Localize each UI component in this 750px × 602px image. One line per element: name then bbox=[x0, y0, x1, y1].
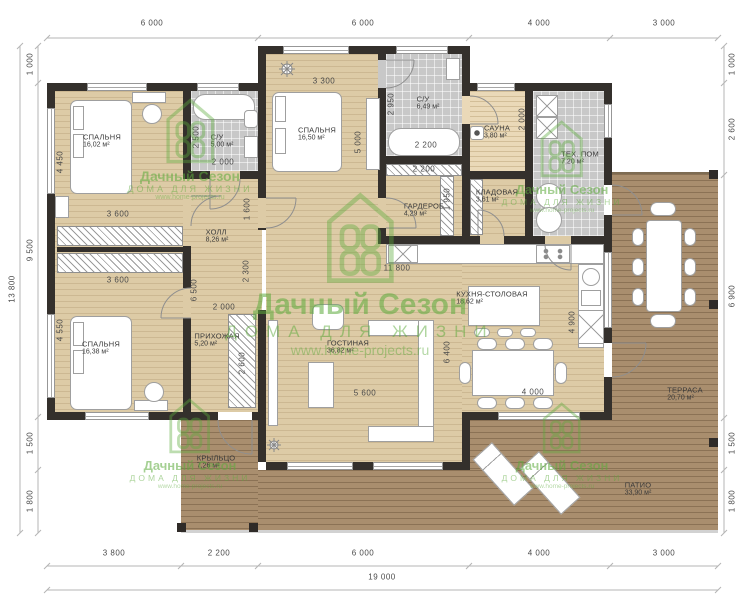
toilet bbox=[244, 110, 258, 128]
wall bbox=[258, 310, 266, 462]
pillow bbox=[275, 96, 286, 122]
room-label: ПРИХОЖАЯ5,20 м² bbox=[194, 331, 239, 348]
pillow bbox=[73, 106, 84, 130]
boiler bbox=[536, 183, 562, 209]
room-name: СПАЛЬНЯ bbox=[298, 125, 336, 134]
door-opening bbox=[604, 185, 612, 215]
fridge bbox=[388, 245, 418, 263]
room-label: СПАЛЬНЯ16,50 м² bbox=[298, 125, 336, 142]
room-area: 33,90 м² bbox=[625, 489, 652, 497]
window bbox=[287, 462, 353, 470]
desk-chair bbox=[142, 104, 162, 124]
window bbox=[87, 83, 147, 91]
terrace-chair bbox=[650, 202, 676, 216]
dimension-left: 1 000 bbox=[26, 53, 35, 76]
dimension-inner: 2 950 bbox=[387, 93, 396, 116]
dimension-inner: 3 600 bbox=[107, 210, 130, 219]
terrace-chair bbox=[632, 228, 644, 246]
wall bbox=[462, 171, 525, 179]
room-area: 4,29 м² bbox=[404, 210, 444, 218]
door-opening bbox=[604, 343, 612, 377]
dining-chair bbox=[533, 338, 553, 350]
tv-console bbox=[268, 320, 278, 426]
room-area: 3,80 м² bbox=[484, 132, 510, 140]
dimension-inner: 4 900 bbox=[568, 311, 577, 334]
cabinet-x bbox=[536, 95, 558, 117]
dimension-bottom: 4 000 bbox=[528, 549, 551, 558]
wall bbox=[183, 246, 191, 420]
dimension-inner: 3 600 bbox=[107, 276, 130, 285]
dimension-inner: 3 300 bbox=[313, 77, 336, 86]
dimension-bottom: 3 000 bbox=[653, 549, 676, 558]
washing-machine bbox=[536, 207, 562, 233]
room-name: ТЕХ. ПОМ bbox=[561, 149, 599, 158]
room-name: ТЕРРАСА bbox=[667, 385, 703, 394]
room-area: 18,62 м² bbox=[456, 298, 527, 306]
dimension-inner: 2 000 bbox=[212, 158, 235, 167]
room-label: КУХНЯ-СТОЛОВАЯ18,62 м² bbox=[456, 289, 527, 306]
dimension-inner: 2 600 bbox=[238, 352, 247, 375]
dimension-right: 6 900 bbox=[728, 285, 737, 308]
room-name: С/У bbox=[211, 132, 234, 141]
terrace-chair bbox=[650, 314, 676, 328]
dimension-inner: 2 200 bbox=[415, 141, 438, 150]
dimension-inner: 4 450 bbox=[56, 151, 65, 174]
dimension-right: 1 500 bbox=[728, 432, 737, 455]
window bbox=[604, 104, 612, 138]
dimension-inner: 5 000 bbox=[354, 131, 363, 154]
room-area: 16,38 м² bbox=[82, 348, 120, 356]
deck-edge bbox=[181, 530, 718, 533]
wardrobe-closet bbox=[57, 226, 183, 246]
room-name: КУХНЯ-СТОЛОВАЯ bbox=[456, 289, 527, 298]
dimension-inner: 1 600 bbox=[243, 198, 252, 221]
dimension-inner: 4 550 bbox=[56, 319, 65, 342]
door-opening bbox=[462, 96, 470, 124]
room-label: С/У6,49 м² bbox=[417, 94, 440, 111]
door-opening bbox=[210, 171, 240, 179]
window bbox=[47, 108, 55, 194]
bar-stool bbox=[520, 328, 536, 337]
cabinet-x bbox=[536, 117, 558, 139]
dining-chair bbox=[533, 397, 553, 409]
room-area: 20,70 м² bbox=[667, 394, 703, 402]
dining-chair bbox=[555, 362, 567, 384]
wardrobe bbox=[366, 98, 380, 170]
wall bbox=[57, 247, 185, 252]
floor-plan: 6 0006 0004 0003 0003 8002 2006 0004 000… bbox=[0, 0, 750, 602]
dimension-total-height: 13 800 bbox=[8, 275, 17, 302]
kitchen-counter bbox=[386, 244, 604, 264]
room-name: САУНА bbox=[484, 123, 510, 132]
cooktop bbox=[536, 245, 570, 263]
room-label: КЛАДОВАЯ3,61 м² bbox=[476, 187, 518, 204]
dimension-inner: 6 500 bbox=[190, 279, 199, 302]
room-label: ТЕРРАСА20,70 м² bbox=[667, 385, 703, 402]
room-label: СПАЛЬНЯ16,38 м² bbox=[82, 339, 120, 356]
column-post bbox=[709, 438, 718, 447]
dimension-inner: 2 000 bbox=[213, 303, 236, 312]
room-label: ТЕХ. ПОМ7,20 м² bbox=[561, 149, 599, 166]
column-post bbox=[177, 523, 186, 532]
dining-chair bbox=[477, 338, 497, 350]
dimension-top: 6 000 bbox=[141, 19, 164, 28]
room-label: ПАТИО33,90 м² bbox=[625, 480, 652, 497]
dimension-inner: 11 800 bbox=[384, 264, 411, 273]
bar-stool bbox=[497, 328, 513, 337]
dimension-inner: 5 600 bbox=[354, 389, 377, 398]
room-area: 16,02 м² bbox=[83, 141, 121, 149]
sink bbox=[244, 136, 258, 158]
dimension-right: 1 800 bbox=[728, 490, 737, 513]
sofa bbox=[368, 426, 434, 442]
dimension-inner: 4 000 bbox=[522, 388, 545, 397]
terrace-table bbox=[646, 220, 682, 312]
dimension-bottom: 2 200 bbox=[208, 549, 231, 558]
dimension-inner: 6 400 bbox=[443, 341, 452, 364]
terrace-chair bbox=[684, 228, 696, 246]
dimension-top: 3 000 bbox=[653, 19, 676, 28]
kitchen-sink bbox=[582, 268, 600, 286]
room-label: КРЫЛЬЦО7,26 м² bbox=[197, 453, 235, 470]
room-area: 16,50 м² bbox=[298, 134, 336, 142]
room-area: 5,00 м² bbox=[211, 141, 234, 149]
sauna-stove bbox=[470, 126, 484, 140]
terrace-chair bbox=[632, 288, 644, 306]
desk-chair bbox=[144, 382, 164, 402]
door-opening bbox=[258, 198, 266, 228]
room-label: С/У5,00 м² bbox=[211, 132, 234, 149]
room-name: ПАТИО bbox=[625, 480, 652, 489]
room-area: 36,82 м² bbox=[327, 347, 369, 355]
wall bbox=[462, 412, 470, 470]
room-name: ХОЛЛ bbox=[206, 227, 229, 236]
room-name: СПАЛЬНЯ bbox=[83, 132, 121, 141]
dimension-inner: 2 300 bbox=[242, 260, 251, 283]
room-name: КЛАДОВАЯ bbox=[476, 187, 518, 196]
coffee-table bbox=[308, 362, 334, 408]
room-area: 5,20 м² bbox=[194, 340, 239, 348]
dimension-bottom: 6 000 bbox=[352, 549, 375, 558]
room-area: 7,26 м² bbox=[197, 462, 235, 470]
bar-stool bbox=[474, 328, 490, 337]
window bbox=[283, 46, 349, 54]
wardrobe-closet bbox=[57, 253, 183, 273]
window bbox=[396, 46, 448, 54]
column-post bbox=[709, 300, 718, 309]
dishwasher bbox=[581, 290, 601, 306]
door-opening bbox=[378, 60, 386, 88]
porch-deck bbox=[181, 420, 258, 532]
door-opening bbox=[218, 412, 252, 420]
column-post bbox=[709, 170, 718, 179]
room-label: ГАРДЕРОБ4,29 м² bbox=[404, 201, 444, 218]
dimension-top: 4 000 bbox=[528, 19, 551, 28]
dimension-top: 6 000 bbox=[352, 19, 375, 28]
room-label: ГОСТИНАЯ36,82 м² bbox=[327, 338, 369, 355]
dining-chair bbox=[477, 397, 497, 409]
sink bbox=[446, 58, 460, 80]
room-label: САУНА3,80 м² bbox=[484, 123, 510, 140]
dining-chair bbox=[505, 338, 525, 350]
desk bbox=[132, 92, 166, 103]
wall bbox=[462, 176, 470, 238]
column-post bbox=[249, 523, 258, 532]
room-label: СПАЛЬНЯ16,02 м² bbox=[83, 132, 121, 149]
door-opening bbox=[545, 236, 571, 244]
door-opening bbox=[183, 196, 191, 226]
room-label: ХОЛЛ8,26 м² bbox=[206, 227, 229, 244]
room-area: 3,61 м² bbox=[476, 196, 518, 204]
room-name: ГОСТИНАЯ bbox=[327, 338, 369, 347]
dimension-left: 9 500 bbox=[26, 239, 35, 262]
window bbox=[47, 314, 55, 398]
terrace-chair bbox=[684, 288, 696, 306]
terrace-chair bbox=[632, 258, 644, 276]
window bbox=[477, 83, 515, 91]
wall bbox=[386, 156, 462, 164]
room-name: ПРИХОЖАЯ bbox=[194, 331, 239, 340]
dimension-inner: 2 200 bbox=[413, 165, 436, 174]
patio-deck bbox=[258, 470, 718, 532]
window bbox=[85, 412, 149, 420]
terrace-chair bbox=[684, 258, 696, 276]
dimension-inner: 2 500 bbox=[192, 126, 201, 149]
wall bbox=[183, 91, 191, 179]
cabinet-x bbox=[578, 310, 604, 344]
room-name: КРЫЛЬЦО bbox=[197, 453, 235, 462]
sofa bbox=[418, 320, 434, 442]
nightstand bbox=[55, 196, 69, 218]
window bbox=[197, 83, 239, 91]
room-area: 8,26 м² bbox=[206, 236, 229, 244]
room-name: С/У bbox=[417, 94, 440, 103]
door-opening bbox=[378, 198, 386, 228]
dining-chair bbox=[459, 362, 471, 384]
room-area: 7,20 м² bbox=[561, 158, 599, 166]
dimension-bottom: 3 800 bbox=[103, 549, 126, 558]
pillow bbox=[275, 128, 286, 154]
dining-chair bbox=[505, 397, 525, 409]
door-opening bbox=[480, 236, 504, 244]
window bbox=[604, 252, 612, 328]
armchair bbox=[312, 304, 344, 330]
room-name: ГАРДЕРОБ bbox=[404, 201, 444, 210]
dimension-right: 1 000 bbox=[728, 53, 737, 76]
dimension-left: 1 800 bbox=[26, 490, 35, 513]
dimension-right: 2 600 bbox=[728, 118, 737, 141]
dimension-left: 1 500 bbox=[26, 432, 35, 455]
room-name: СПАЛЬНЯ bbox=[82, 339, 120, 348]
window bbox=[498, 412, 580, 420]
dimension-total-width: 19 000 bbox=[368, 573, 395, 582]
room-area: 6,49 м² bbox=[417, 103, 440, 111]
window bbox=[373, 462, 443, 470]
dimension-inner: 2 000 bbox=[518, 108, 527, 131]
